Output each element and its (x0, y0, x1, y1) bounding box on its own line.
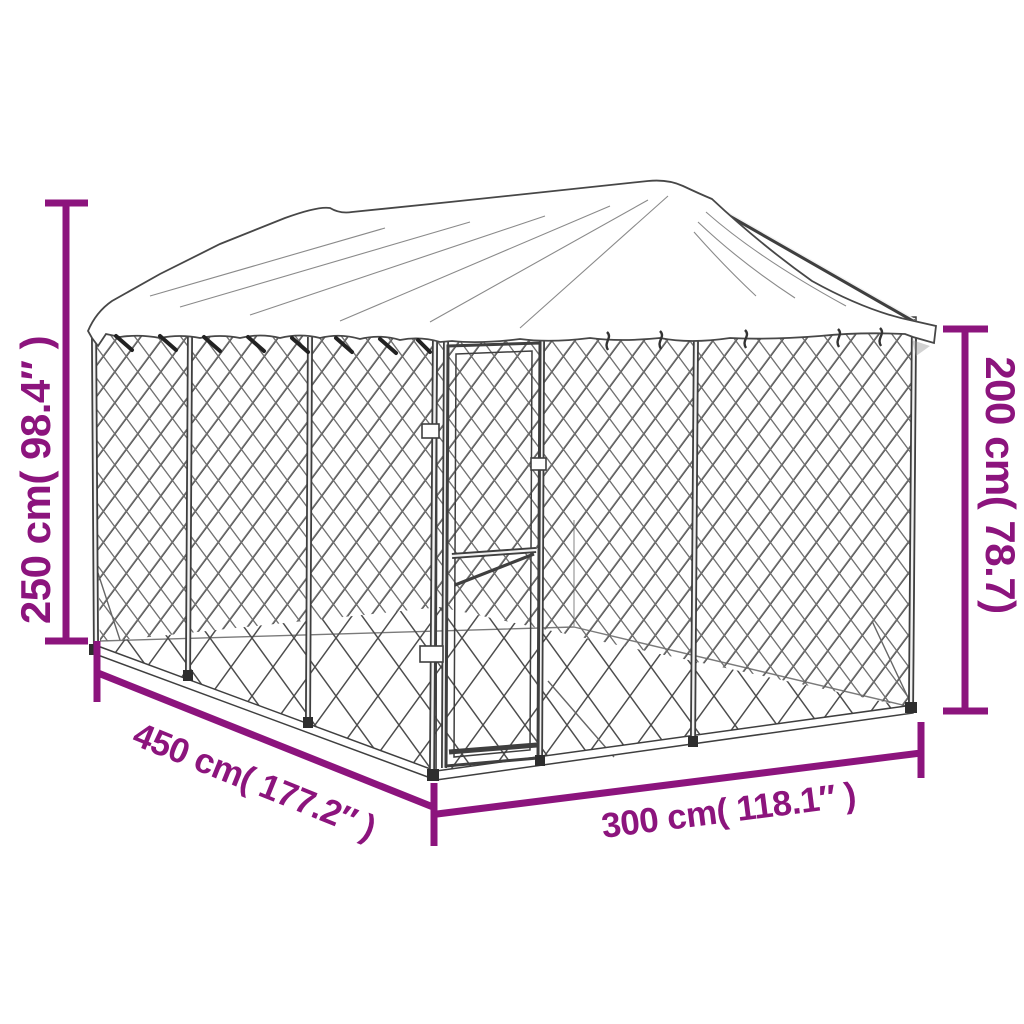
kennel-illustration: 250 cm( 98.4″ ) 200 cm( 78.7) 450 cm( 17… (0, 0, 1024, 1024)
product-dimension-diagram: 250 cm( 98.4″ ) 200 cm( 78.7) 450 cm( 17… (0, 0, 1024, 1024)
dimension-height-right-label: 200 cm( 78.7) (977, 356, 1024, 613)
dimension-height-left-label: 250 cm( 98.4″ ) (12, 336, 59, 624)
left-wall-mesh (94, 330, 440, 774)
